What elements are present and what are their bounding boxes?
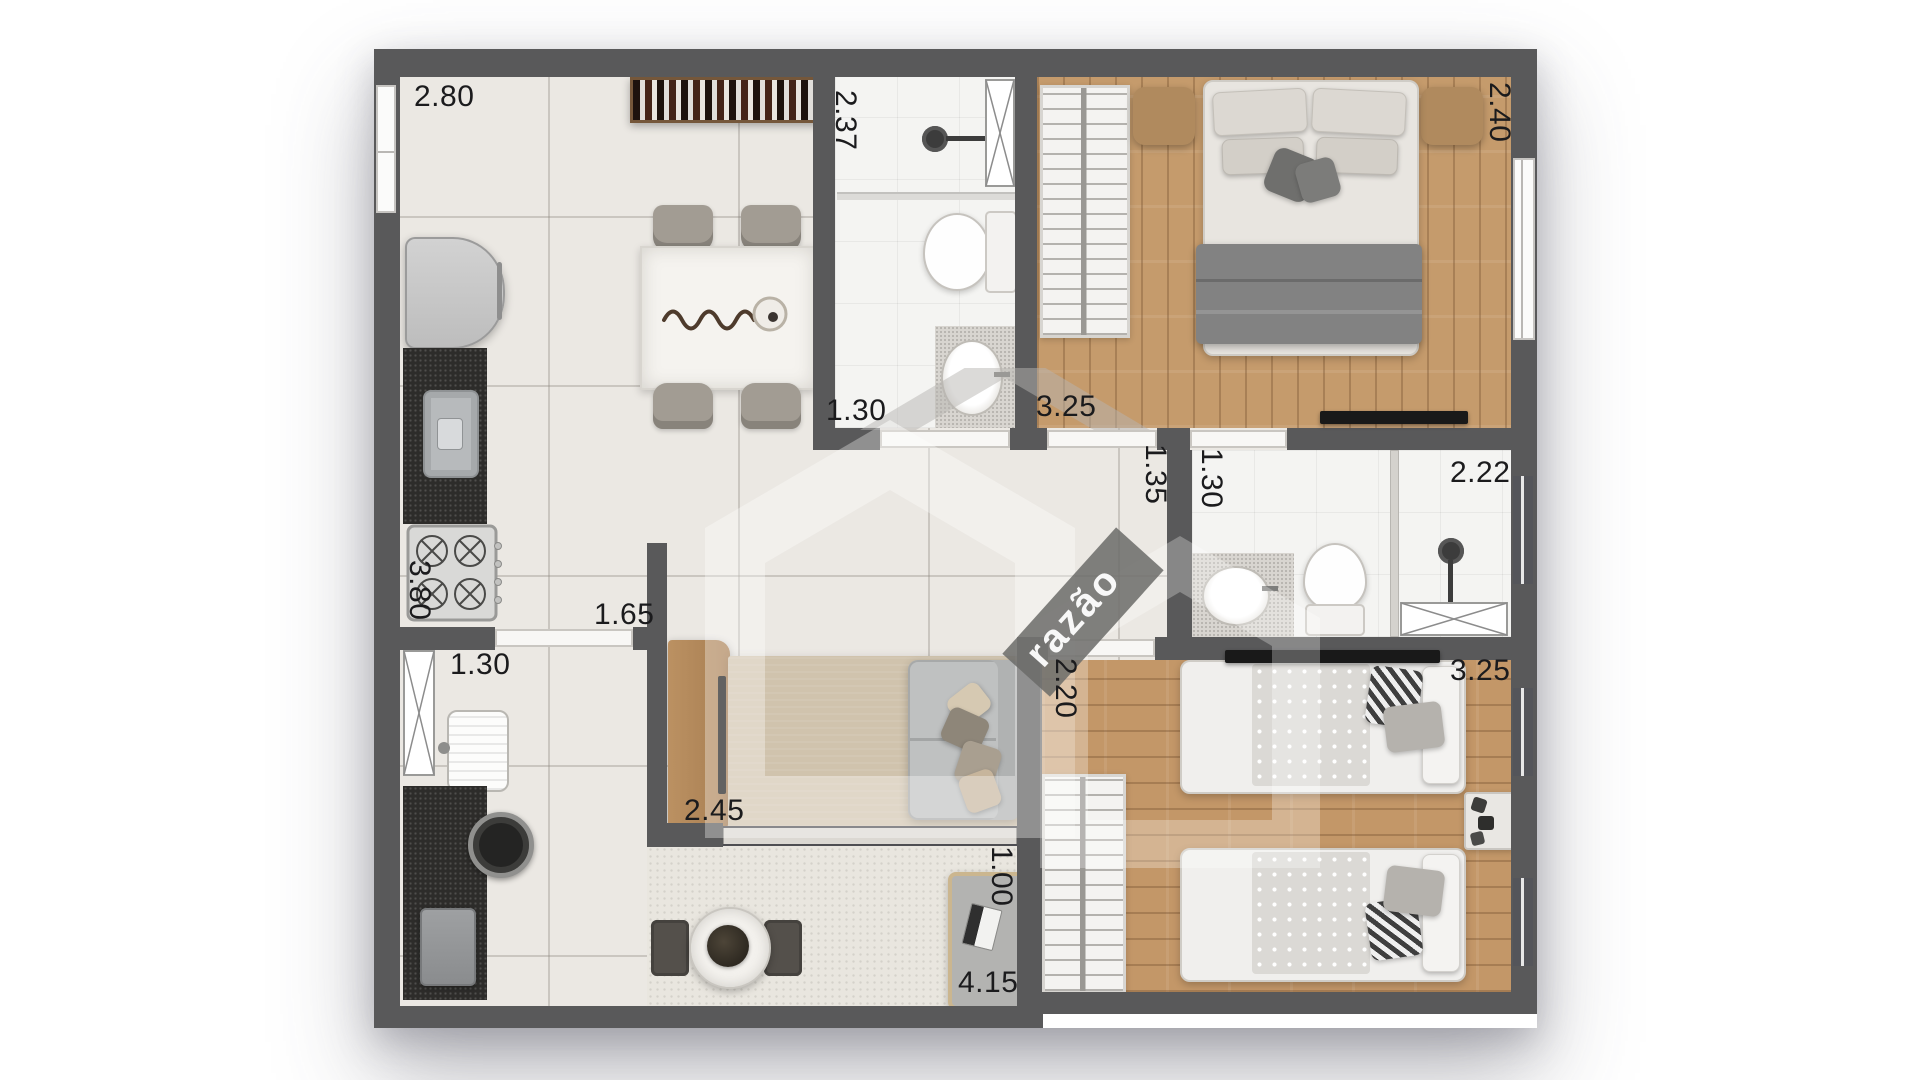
bathroom2-faucet <box>1262 586 1278 591</box>
bathroom1-faucet <box>994 372 1010 377</box>
pillow <box>1212 88 1308 137</box>
toilet-bowl <box>923 213 991 291</box>
tub-faucet <box>438 742 450 754</box>
dim-bedroom1-door: 3.25 <box>1036 390 1096 424</box>
shaft-bathroom2-icon <box>1400 602 1508 636</box>
wall-kitchen-service <box>374 627 495 650</box>
wall-bedroom2-bottom <box>1035 992 1537 1014</box>
wall-bathroom1-bottom-b <box>1010 428 1047 450</box>
bathroom2-sink <box>1202 566 1270 626</box>
dim-service-width: 1.30 <box>450 648 510 682</box>
pillow <box>1382 865 1445 918</box>
toilet-tank <box>1305 604 1365 636</box>
floor-plan: 2.80 2.37 2.40 1.30 3.25 1.35 1.30 2.22 … <box>0 0 1920 1080</box>
nightstand <box>1421 87 1483 145</box>
window-kitchen <box>376 85 396 213</box>
door-bathroom1 <box>880 430 1010 448</box>
nightstand <box>1133 87 1195 145</box>
shaft-service-icon <box>403 650 435 776</box>
bedroom2-closet <box>1042 774 1126 994</box>
shower-arm <box>1448 560 1453 606</box>
table-decor-icon <box>642 248 814 388</box>
dim-bedroom1-depth: 2.40 <box>1482 82 1516 142</box>
bed-throw <box>1252 664 1370 786</box>
bathroom1-sink <box>941 340 1003 416</box>
tv-bedroom1 <box>1320 411 1468 424</box>
wall-living-stub-v <box>647 543 667 847</box>
window-bedroom2-a <box>1513 688 1533 776</box>
tv-bedroom2 <box>1225 650 1440 663</box>
table-plant-icon <box>707 925 749 967</box>
wall-balcony-bottom <box>374 1006 1043 1028</box>
window-bedroom2-b <box>1513 878 1533 966</box>
shower-head-icon <box>922 126 948 152</box>
wall-bathroom1-right <box>1015 77 1037 450</box>
dim-kitchen-depth: 3.80 <box>402 560 436 620</box>
door-bathroom2 <box>1190 430 1287 448</box>
pillow <box>1311 88 1407 137</box>
shower-partition <box>1390 450 1399 637</box>
refrigerator-handle <box>497 262 502 320</box>
window-bedroom1 <box>1513 158 1535 340</box>
dim-kitchen-pass: 1.65 <box>594 598 654 632</box>
toilet-tank <box>985 211 1017 293</box>
window-bathroom2 <box>1513 476 1533 584</box>
dim-kitchen-width: 2.80 <box>414 80 474 114</box>
dim-bedroom2-width: 3.25 <box>1450 654 1510 688</box>
bed-throw <box>1252 852 1370 974</box>
shaft-bathroom1-icon <box>985 79 1015 187</box>
kitchen-sink-basin <box>437 418 463 450</box>
dining-chair <box>653 383 713 429</box>
dining-table <box>640 246 816 390</box>
dining-chair <box>741 205 801 251</box>
dim-tv-wall: 2.45 <box>684 794 744 828</box>
wall-top <box>374 49 1537 77</box>
sliding-door-balcony <box>723 826 1017 846</box>
dim-balcony-depth: 1.00 <box>984 846 1018 906</box>
wall-living-bedroom2 <box>1017 637 1042 1006</box>
dim-bathroom2-door: 1.30 <box>1194 448 1228 508</box>
laundry-tub <box>447 710 509 792</box>
dim-bathroom1-depth: 2.37 <box>828 90 862 150</box>
wall-bathroom1-bottom-a <box>813 428 880 450</box>
refrigerator <box>405 237 505 349</box>
shower-drain <box>837 192 1015 200</box>
dim-bathroom2-width: 2.22 <box>1450 456 1510 490</box>
dining-chair <box>741 383 801 429</box>
service-appliance <box>420 908 476 986</box>
washing-machine <box>468 812 534 878</box>
tv-living <box>718 676 726 794</box>
bedroom1-closet <box>1040 85 1130 338</box>
dining-chair <box>653 205 713 251</box>
dim-balcony-width: 4.15 <box>958 966 1018 1000</box>
pillow <box>1382 701 1445 754</box>
dim-bedroom2-side: 2.20 <box>1048 658 1082 718</box>
nightstand-item <box>1478 816 1494 830</box>
door-bedroom2 <box>1048 639 1155 657</box>
dim-bathroom1-door: 1.30 <box>826 394 886 428</box>
wine-rack <box>630 77 819 123</box>
bed-blanket <box>1196 244 1422 344</box>
dim-hall-width: 1.35 <box>1138 444 1172 504</box>
wall-bedroom1-bottom-b <box>1287 428 1511 450</box>
balcony-chair <box>651 920 689 976</box>
